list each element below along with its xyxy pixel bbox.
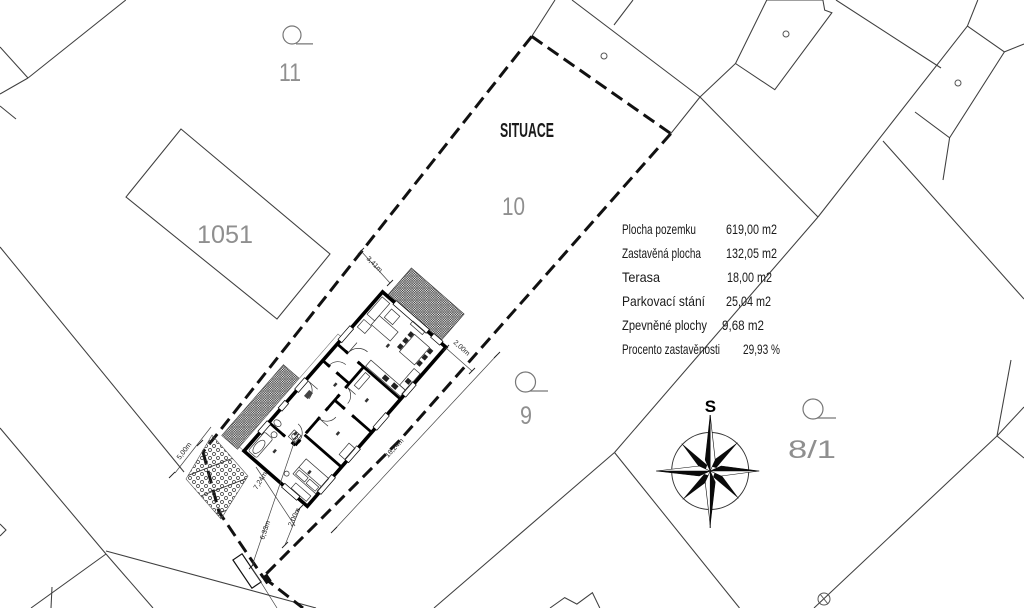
svg-text:18,00 m2: 18,00 m2 (727, 269, 772, 285)
svg-text:25,04 m2: 25,04 m2 (726, 293, 771, 309)
svg-text:Parkovací stání: Parkovací stání (622, 293, 705, 309)
svg-text:SITUACE: SITUACE (500, 120, 554, 142)
svg-text:Procento zastavěnosti: Procento zastavěnosti (622, 341, 720, 357)
svg-text:132,05 m2: 132,05 m2 (726, 245, 777, 261)
svg-text:S: S (705, 397, 716, 416)
svg-text:Terasa: Terasa (622, 269, 660, 285)
svg-text:8/1: 8/1 (788, 436, 836, 464)
svg-text:Plocha pozemku: Plocha pozemku (622, 221, 696, 237)
svg-text:29,93 %: 29,93 % (743, 341, 780, 357)
svg-text:Zastavěná plocha: Zastavěná plocha (622, 245, 701, 261)
svg-text:619,00 m2: 619,00 m2 (726, 221, 777, 237)
svg-text:Zpevněné plochy: Zpevněné plochy (622, 317, 707, 333)
svg-text:10: 10 (502, 193, 525, 221)
svg-text:1051: 1051 (197, 221, 253, 249)
svg-text:9: 9 (520, 402, 532, 430)
svg-text:11: 11 (279, 59, 301, 87)
svg-text:9,68 m2: 9,68 m2 (722, 317, 764, 333)
